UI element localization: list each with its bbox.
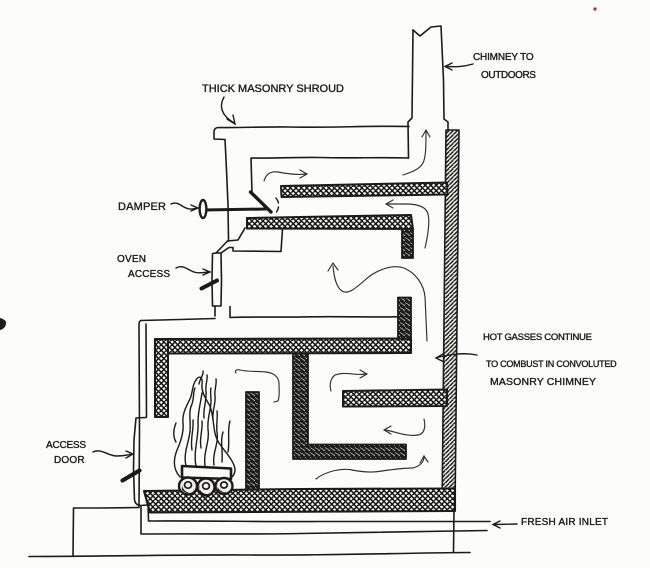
svg-text:HOT GASSES CONTINUE: HOT GASSES CONTINUE — [483, 332, 592, 343]
svg-text:ACCESS: ACCESS — [128, 269, 170, 280]
svg-text:FRESH AIR INLET: FRESH AIR INLET — [521, 517, 608, 528]
svg-text:MASONRY CHIMNEY: MASONRY CHIMNEY — [490, 376, 596, 388]
svg-text:OUTDOORS: OUTDOORS — [481, 70, 536, 81]
svg-text:DAMPER: DAMPER — [118, 201, 166, 213]
svg-text:TO COMBUST IN CONVOLUTED: TO COMBUST IN CONVOLUTED — [486, 359, 617, 369]
svg-text:DOOR: DOOR — [54, 455, 85, 466]
svg-text:OVEN: OVEN — [117, 254, 146, 265]
svg-text:CHIMNEY TO: CHIMNEY TO — [473, 52, 534, 63]
svg-text:ACCESS: ACCESS — [46, 440, 86, 451]
svg-text:THICK MASONRY SHROUD: THICK MASONRY SHROUD — [202, 83, 344, 95]
